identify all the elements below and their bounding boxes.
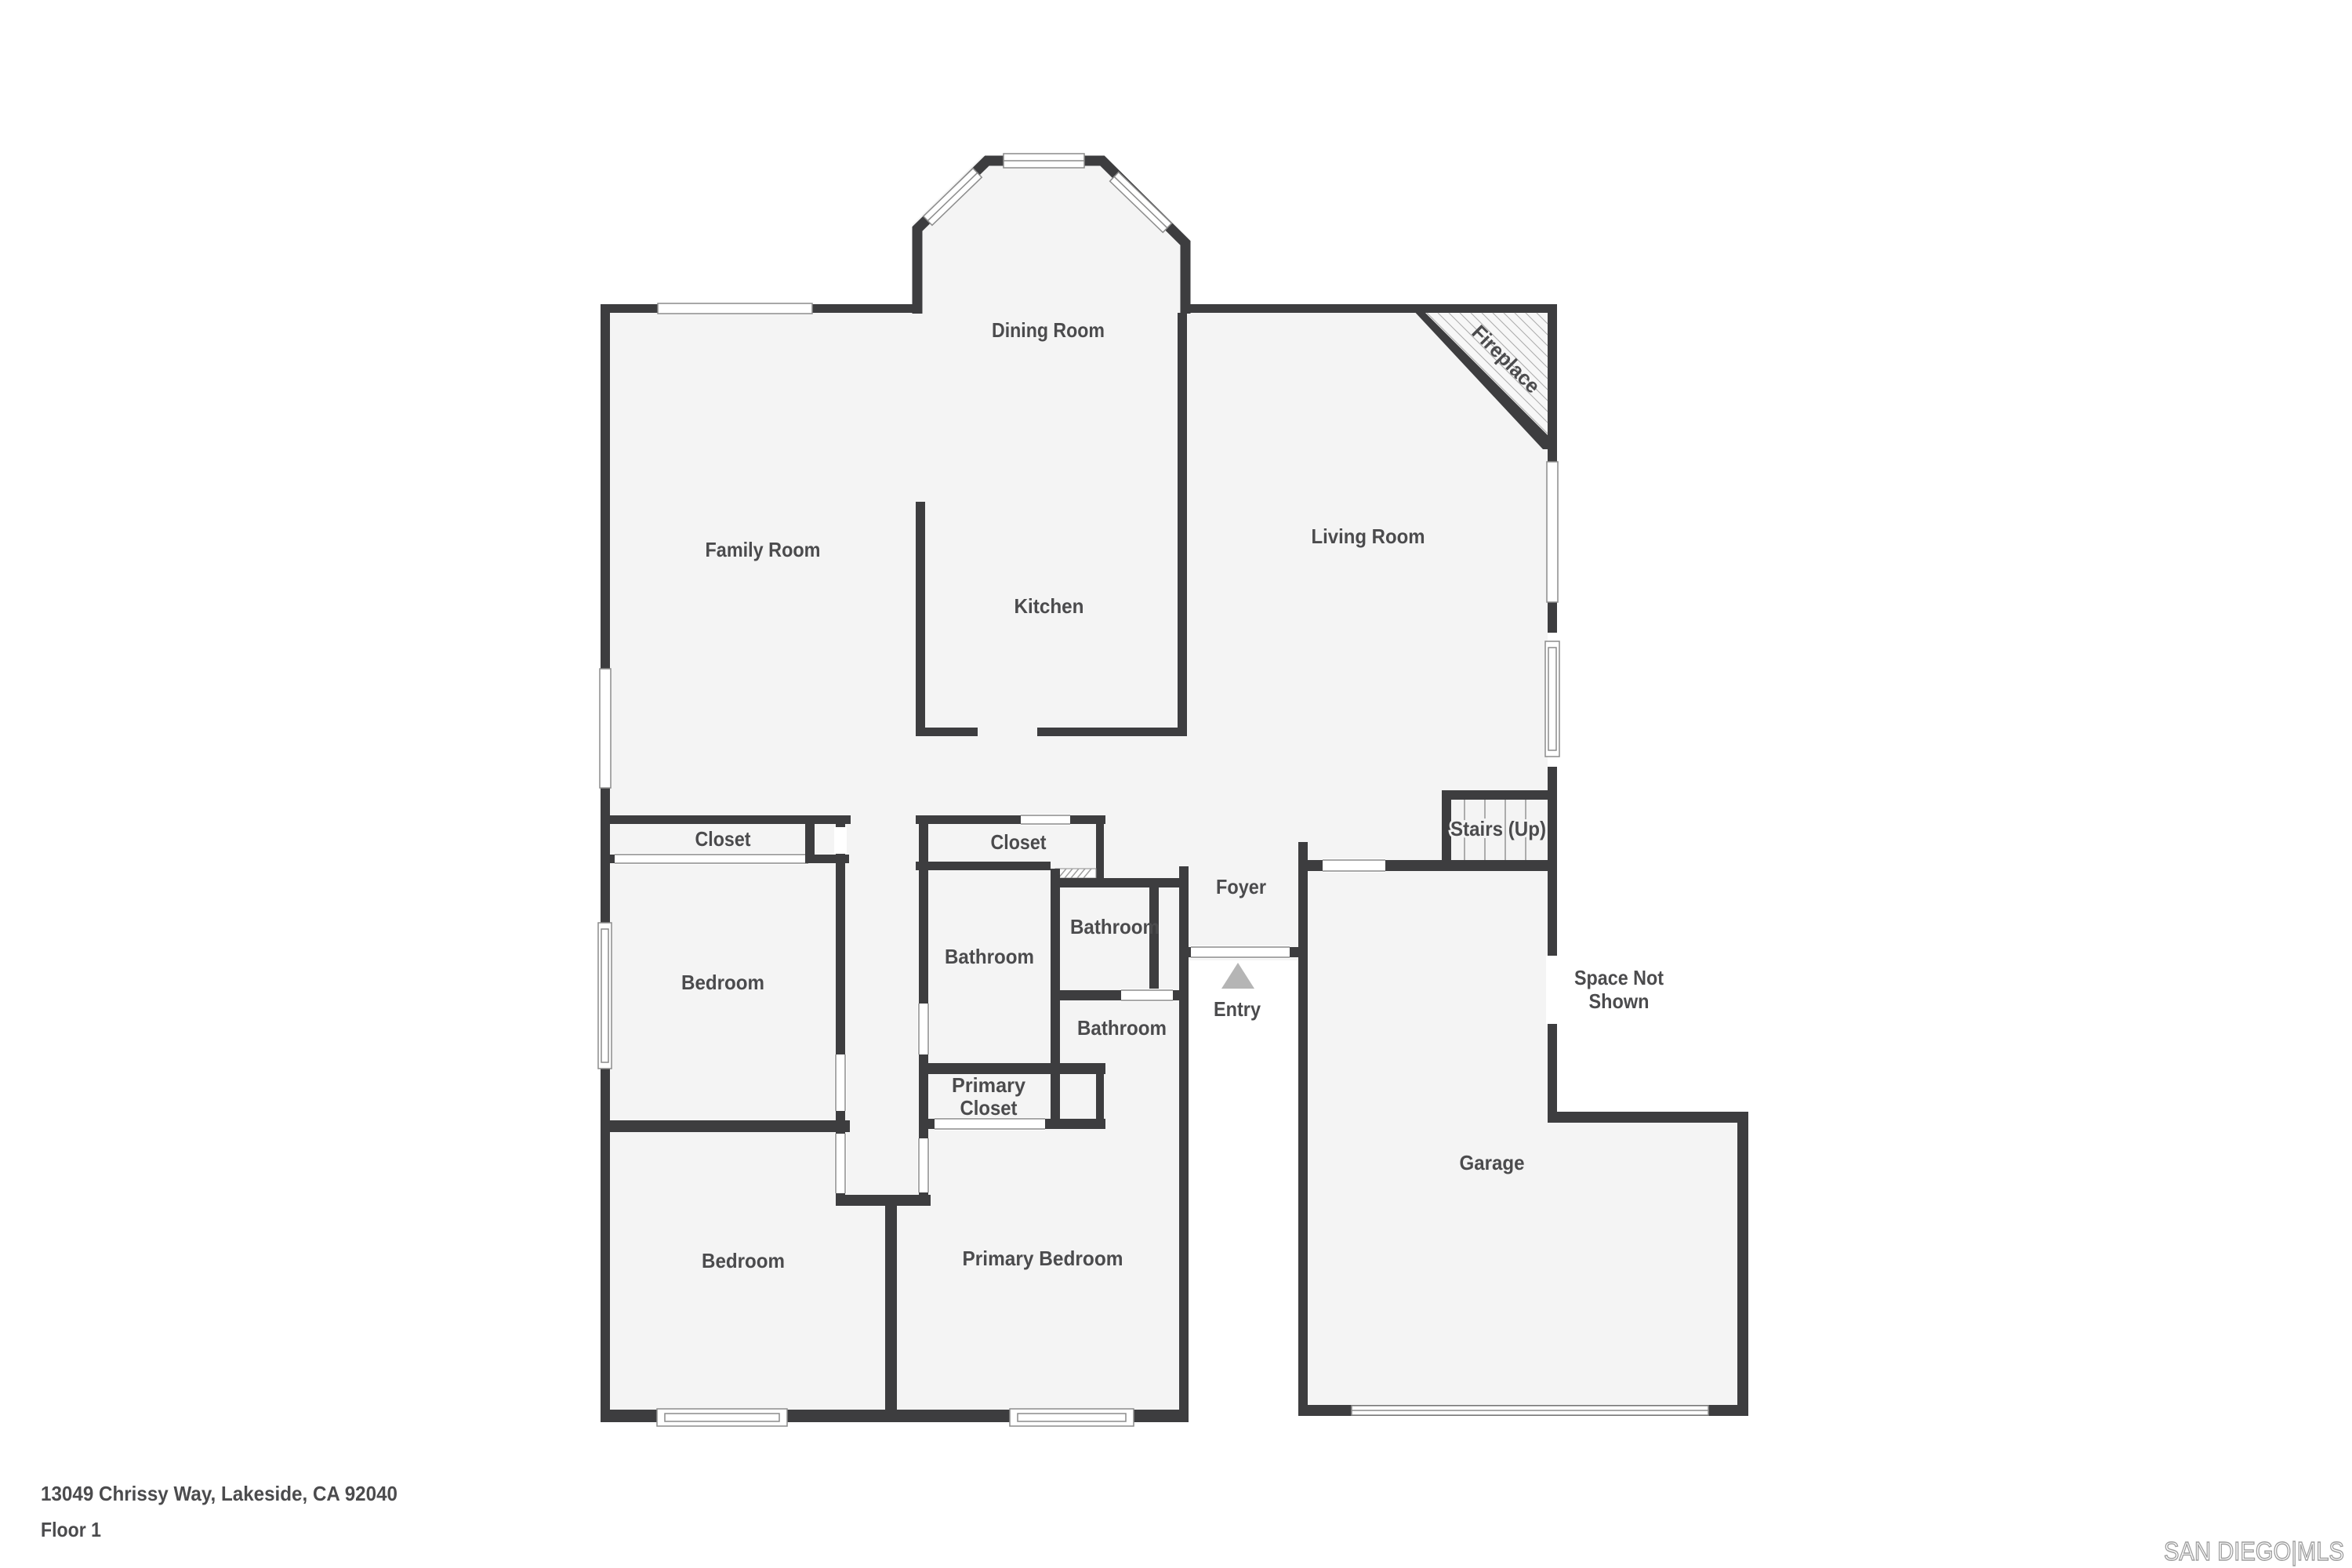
svg-text:Foyer: Foyer [1216,875,1266,898]
svg-text:Closet: Closet [695,827,751,851]
svg-text:Primary: Primary [952,1073,1026,1097]
svg-text:Living Room: Living Room [1312,524,1425,548]
svg-text:13049 Chrissy Way, Lakeside, C: 13049 Chrissy Way, Lakeside, CA 92040 [41,1482,397,1505]
svg-text:Bedroom: Bedroom [681,971,764,994]
svg-text:Primary Bedroom: Primary Bedroom [963,1247,1123,1270]
svg-text:Bathroom: Bathroom [1070,915,1160,938]
svg-text:Closet: Closet [991,830,1047,854]
svg-text:SAN DIEGO|MLS: SAN DIEGO|MLS [2164,1537,2344,1566]
svg-text:Space Not: Space Not [1574,966,1664,989]
svg-text:Bedroom: Bedroom [702,1249,785,1272]
svg-text:Closet: Closet [960,1096,1018,1120]
svg-text:Stairs (Up): Stairs (Up) [1450,817,1546,840]
svg-text:Floor 1: Floor 1 [41,1518,101,1541]
svg-text:Bathroom: Bathroom [1077,1016,1167,1040]
svg-text:Entry: Entry [1214,997,1261,1021]
svg-text:Kitchen: Kitchen [1014,594,1084,618]
svg-text:Family Room: Family Room [706,538,821,561]
svg-text:Shown: Shown [1589,989,1650,1013]
svg-text:Dining Room: Dining Room [992,318,1105,342]
svg-text:Bathroom: Bathroom [945,945,1034,968]
svg-text:Garage: Garage [1460,1151,1525,1174]
